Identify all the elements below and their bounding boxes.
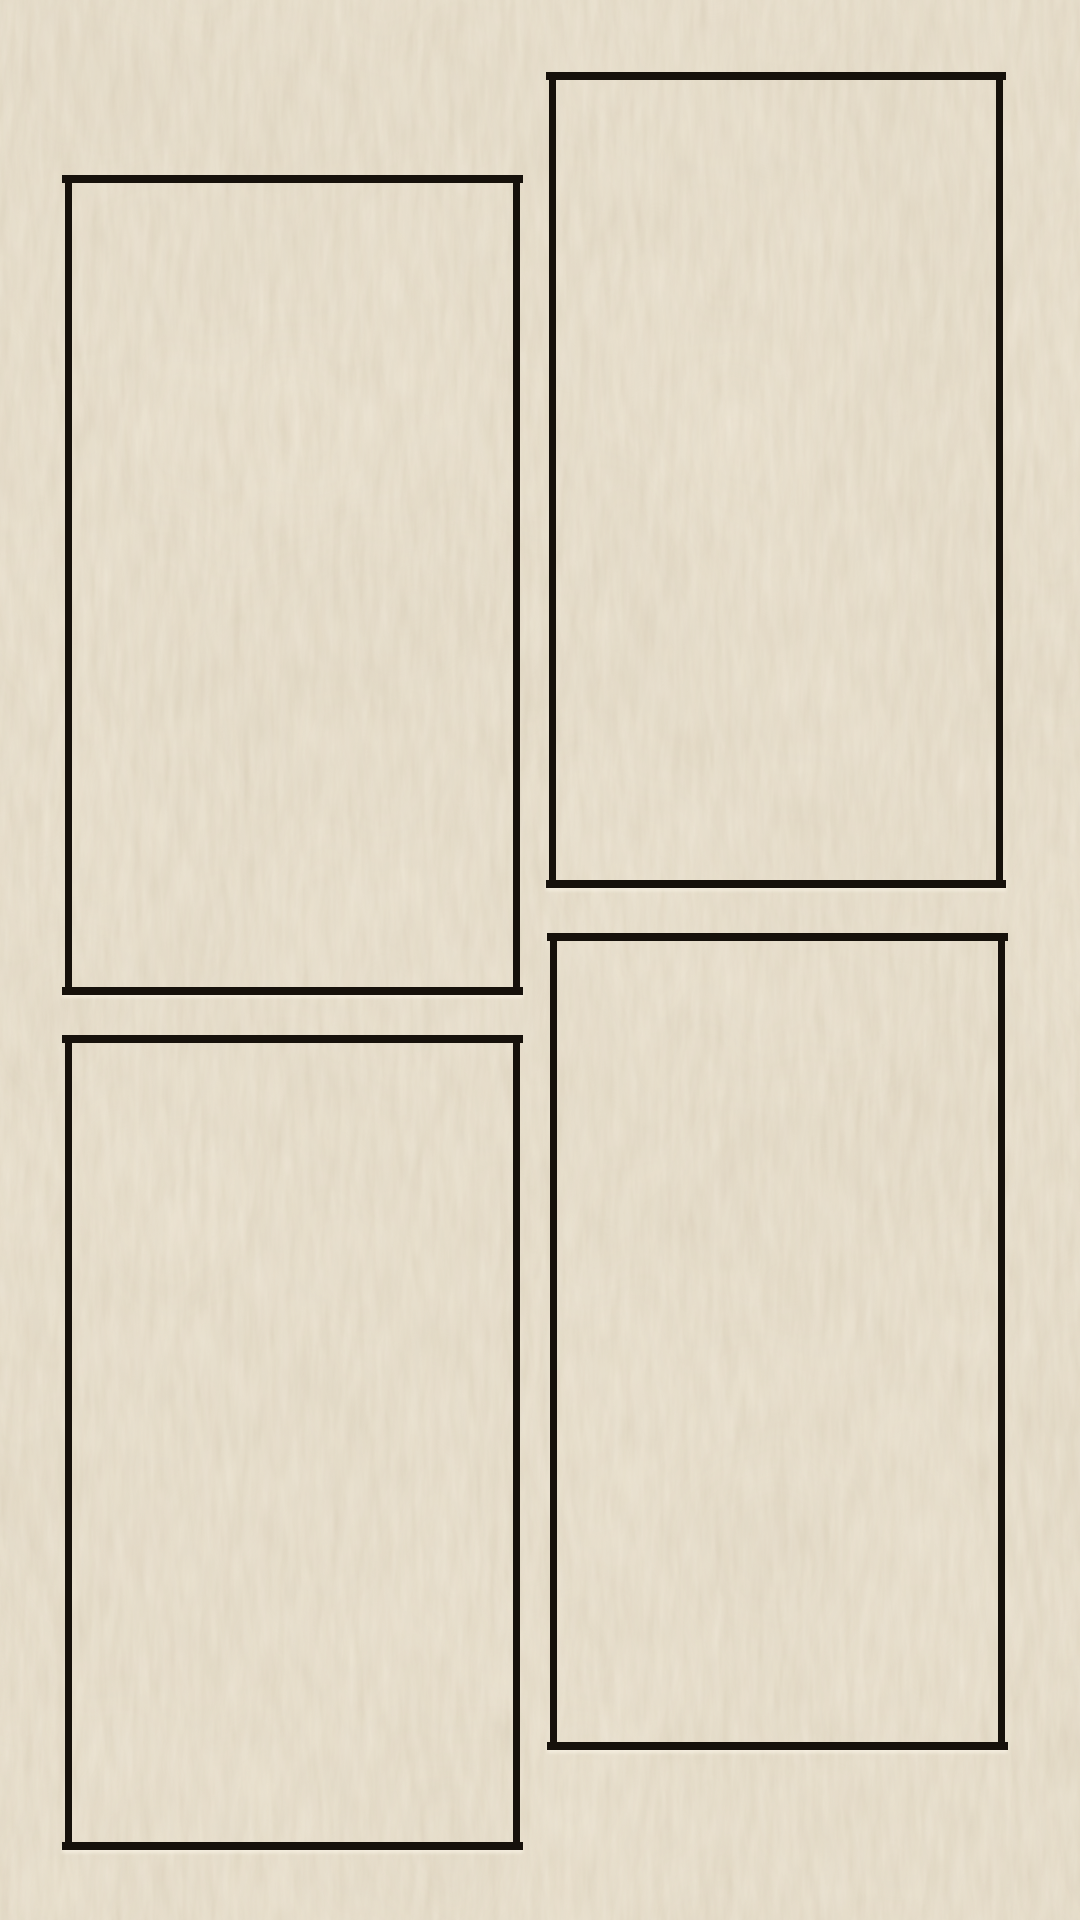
- comic-panel-bottom-left: [65, 1035, 520, 1850]
- comic-panel-top-right: [549, 72, 1003, 888]
- comic-page: [0, 0, 1080, 1920]
- comic-panel-bottom-right: [550, 933, 1005, 1750]
- comic-panel-top-left: [65, 175, 520, 995]
